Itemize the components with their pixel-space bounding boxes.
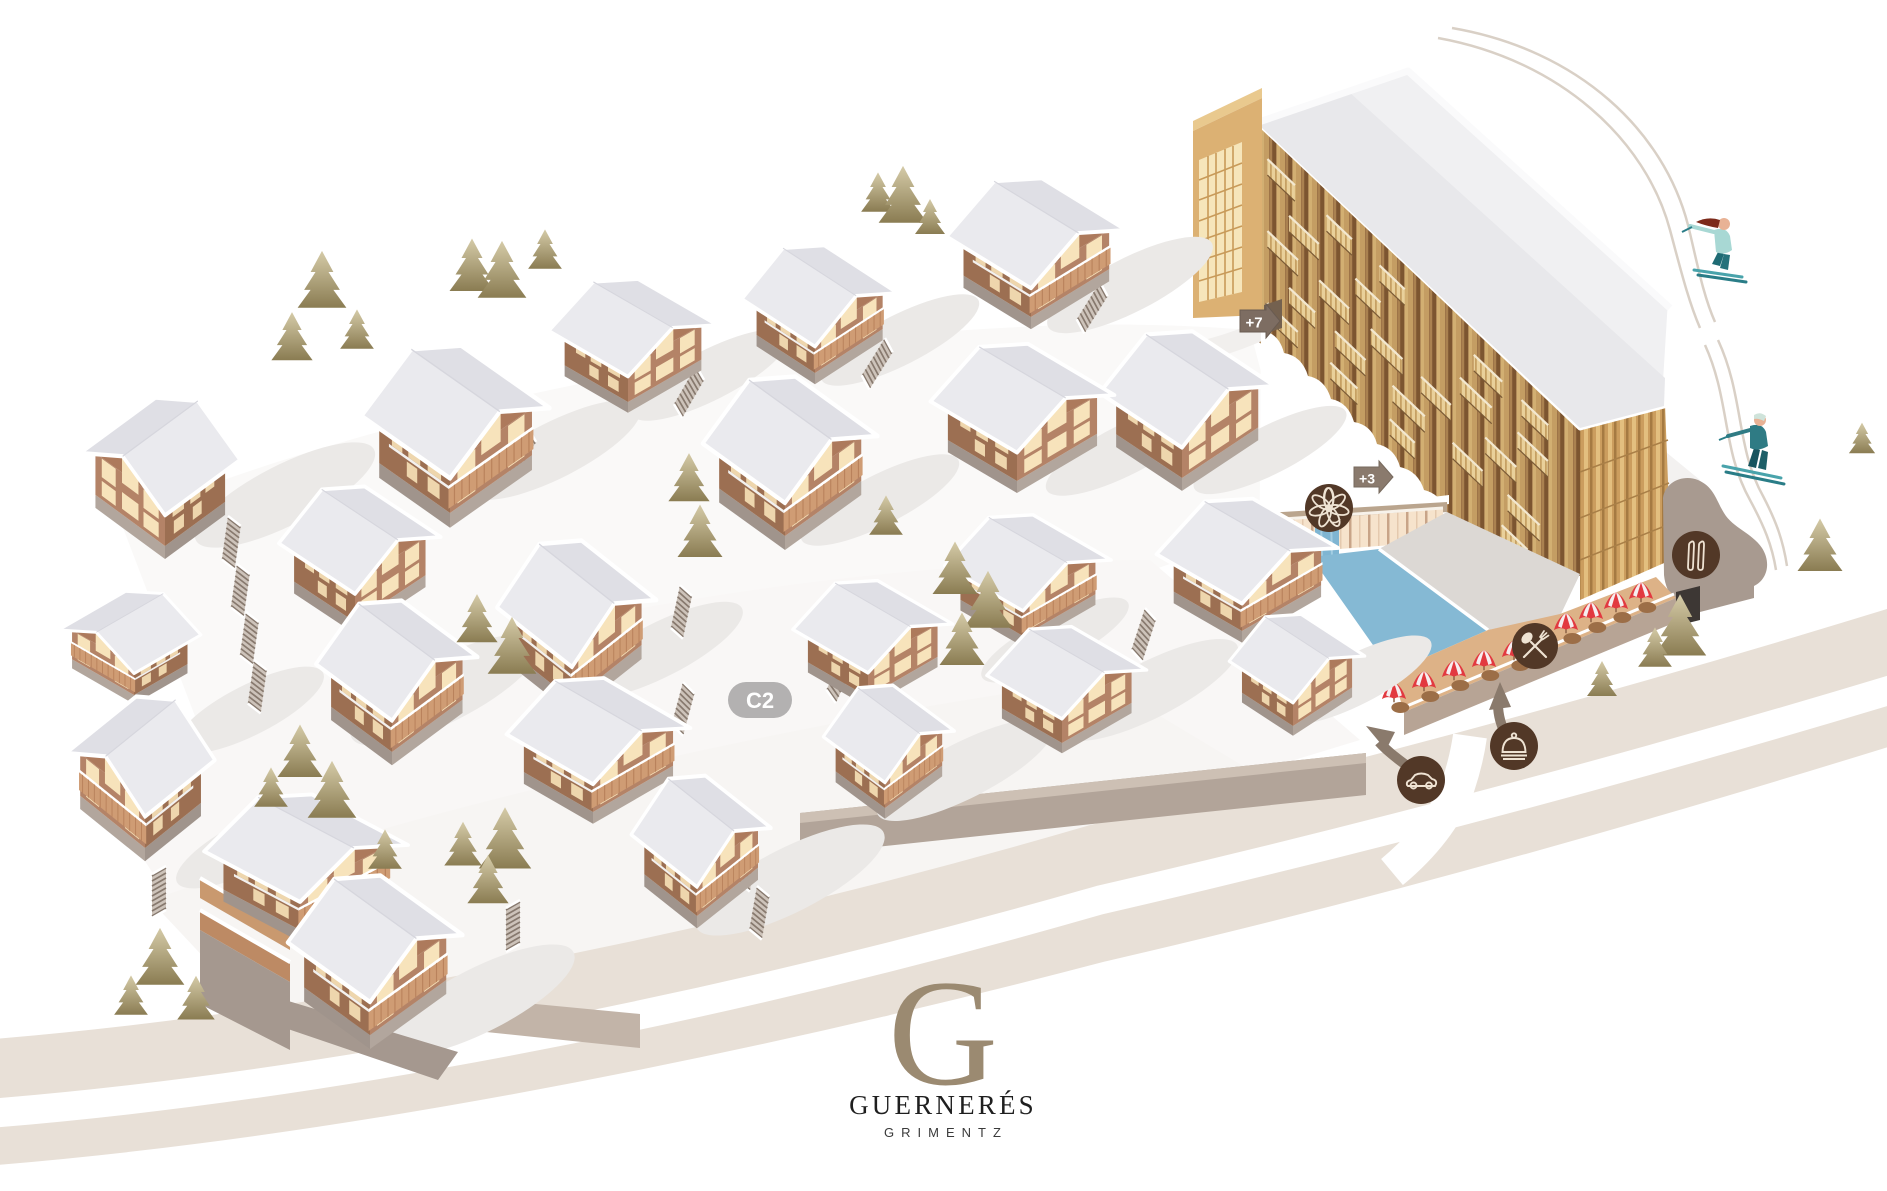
- svg-text:GUERNERÉS: GUERNERÉS: [849, 1090, 1037, 1120]
- svg-text:+7: +7: [1245, 315, 1262, 332]
- svg-text:+3: +3: [1359, 471, 1375, 487]
- svg-text:GRIMENTZ: GRIMENTZ: [884, 1125, 1008, 1140]
- svg-text:C2: C2: [746, 688, 774, 713]
